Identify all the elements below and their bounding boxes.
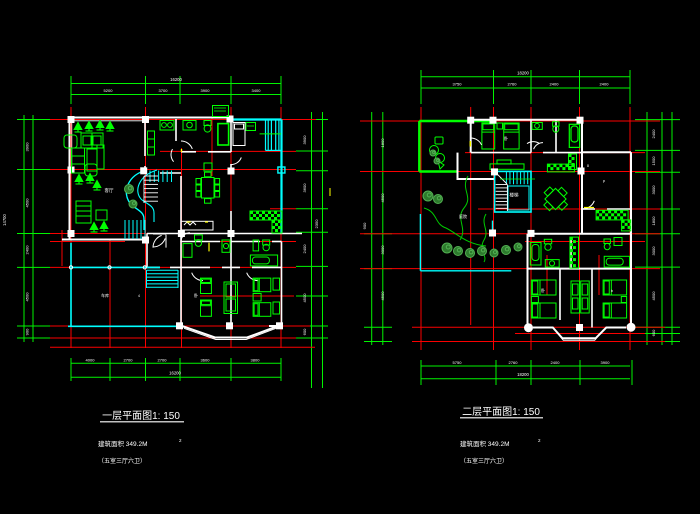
svg-text:3700: 3700 <box>159 88 169 93</box>
svg-text:18200: 18200 <box>517 372 529 377</box>
svg-text:（五室三厅六卫）: （五室三厅六卫） <box>460 457 508 465</box>
svg-text:4500: 4500 <box>380 193 385 203</box>
svg-text:16200: 16200 <box>169 371 181 376</box>
svg-text:2400: 2400 <box>600 82 610 87</box>
svg-text:楼梯: 楼梯 <box>510 192 519 199</box>
svg-text:4000: 4000 <box>86 358 96 363</box>
svg-text:二层平面图1: 150: 二层平面图1: 150 <box>462 406 540 418</box>
svg-text:600: 600 <box>651 329 656 336</box>
svg-text:14700: 14700 <box>2 214 7 226</box>
svg-text:（五室三厅六卫）: （五室三厅六卫） <box>98 457 146 465</box>
svg-text:900: 900 <box>25 328 30 335</box>
svg-text:5750: 5750 <box>453 360 463 365</box>
svg-text:2400: 2400 <box>550 82 560 87</box>
svg-text:1800: 1800 <box>651 216 656 226</box>
svg-text:庭院: 庭院 <box>459 213 467 219</box>
svg-text:2400: 2400 <box>551 360 561 365</box>
svg-text:2400: 2400 <box>25 245 30 255</box>
svg-text:8: 8 <box>587 164 589 168</box>
svg-text:卧: 卧 <box>504 135 508 141</box>
svg-text:3750: 3750 <box>453 82 463 87</box>
svg-text:建筑面积 349.2M: 建筑面积 349.2M <box>98 439 148 448</box>
svg-text:3600: 3600 <box>201 358 211 363</box>
svg-text:2400: 2400 <box>651 129 656 139</box>
svg-text:建筑面积 349.2M: 建筑面积 349.2M <box>460 439 510 448</box>
svg-text:3000: 3000 <box>380 245 385 255</box>
svg-text:5200: 5200 <box>104 88 114 93</box>
svg-text:4500: 4500 <box>25 292 30 302</box>
svg-text:卧: 卧 <box>194 292 198 298</box>
svg-text:600: 600 <box>302 328 307 335</box>
svg-text:2760: 2760 <box>508 82 518 87</box>
svg-text:2760: 2760 <box>509 360 519 365</box>
svg-text:4500: 4500 <box>380 291 385 301</box>
svg-text:一层平面图1: 150: 一层平面图1: 150 <box>102 410 180 422</box>
svg-text:3600: 3600 <box>302 183 307 193</box>
svg-text:1500: 1500 <box>651 156 656 166</box>
svg-text:900: 900 <box>362 222 367 229</box>
svg-text:2400: 2400 <box>302 244 307 254</box>
svg-text:3900: 3900 <box>25 142 30 152</box>
svg-text:4500: 4500 <box>302 293 307 303</box>
svg-text:16200: 16200 <box>170 77 182 82</box>
svg-text:2350: 2350 <box>314 219 319 229</box>
svg-text:3000: 3000 <box>651 185 656 195</box>
svg-text:3900: 3900 <box>201 88 211 93</box>
svg-text:3900: 3900 <box>601 360 611 365</box>
svg-text:车库: 车库 <box>101 292 109 298</box>
svg-text:3800: 3800 <box>251 358 261 363</box>
svg-text:18200: 18200 <box>517 71 529 76</box>
svg-text:卧: 卧 <box>541 287 545 293</box>
svg-text:4: 4 <box>138 294 140 298</box>
svg-text:3400: 3400 <box>252 88 262 93</box>
svg-text:4500: 4500 <box>651 291 656 301</box>
svg-text:3000: 3000 <box>651 246 656 256</box>
svg-text:3900: 3900 <box>302 135 307 145</box>
svg-text:1800: 1800 <box>380 138 385 148</box>
svg-text:2700: 2700 <box>158 358 168 363</box>
svg-text:4500: 4500 <box>25 198 30 208</box>
svg-text:客厅: 客厅 <box>105 187 114 194</box>
svg-text:2700: 2700 <box>124 358 134 363</box>
